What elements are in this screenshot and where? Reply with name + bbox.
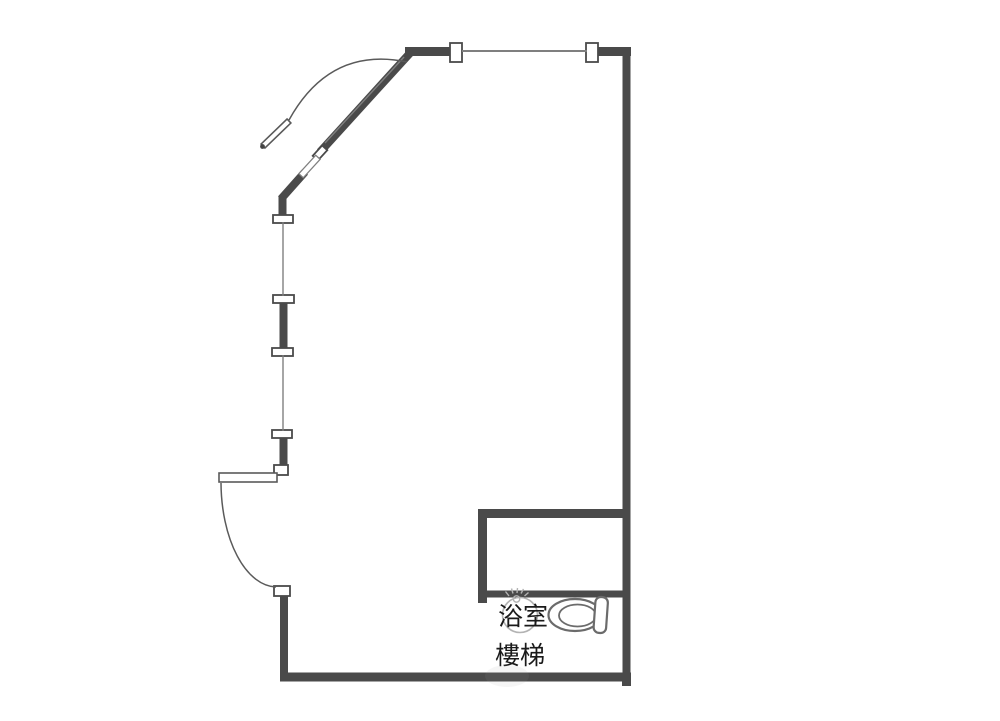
entrance-door-arc xyxy=(289,59,407,120)
walls xyxy=(272,43,631,686)
floor-plan: 浴室 樓梯 xyxy=(0,0,1000,721)
window-marker xyxy=(586,43,598,62)
entrance-door-leaf xyxy=(261,119,291,148)
diagonal-window-bar xyxy=(299,155,320,177)
toilet-bowl-inner xyxy=(559,605,596,627)
window-marker xyxy=(450,43,462,62)
window-lines xyxy=(283,51,587,431)
floor-plan-svg: 浴室 樓梯 xyxy=(0,0,1000,721)
watermark xyxy=(485,665,529,687)
bathroom-label: 浴室 xyxy=(498,603,548,631)
diagonal-wall-upper xyxy=(320,52,411,152)
door-hinge-dot xyxy=(260,144,265,149)
doors xyxy=(219,59,407,587)
side-door-arc xyxy=(221,483,276,587)
window-marker xyxy=(273,215,293,223)
toilet-icon xyxy=(549,597,609,634)
window-marker xyxy=(272,348,293,356)
door-jamb-marker xyxy=(274,586,290,596)
side-door-leaf xyxy=(219,473,277,482)
window-marker xyxy=(273,295,294,303)
window-marker xyxy=(272,430,292,438)
toilet-tank xyxy=(593,597,608,634)
